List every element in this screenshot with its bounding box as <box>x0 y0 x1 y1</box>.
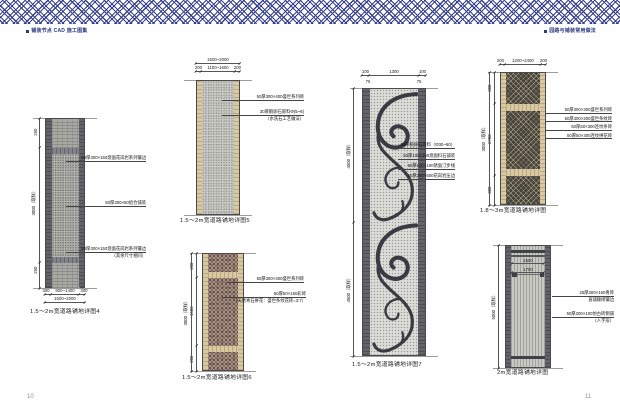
page-number-right: 11 <box>585 394 591 400</box>
paving-detail-figure-9: 1500 1700 5000（取样） 25厚300×150青砖 直铺顺砌镶边 5… <box>0 0 620 420</box>
dimension-line <box>512 272 544 273</box>
dimension-label: 1500 <box>512 259 544 263</box>
book-spread: 铺装节点 CAD 施工图集 园路与铺装常用做法 250 3000（取样） 250… <box>0 0 620 420</box>
annotation-label: 25厚300×150青砖 直铺顺砌镶边 <box>552 290 614 302</box>
dimension-line <box>512 263 544 264</box>
page-number-left: 10 <box>27 394 34 400</box>
stone-border-right <box>545 246 550 367</box>
footer-band <box>511 356 546 359</box>
striped-fill-texture <box>511 246 546 367</box>
annotation-label: 50厚200×100仿古砖侧铺 （人字形） <box>552 311 614 323</box>
dimension-line <box>498 245 499 368</box>
header-band <box>511 250 546 253</box>
header-band <box>511 255 546 257</box>
drawing-caption: 2m宽道路铺地详图 <box>497 371 548 377</box>
dimension-label: 1700 <box>512 268 544 272</box>
dimension-label: 5000（取样） <box>492 286 496 326</box>
